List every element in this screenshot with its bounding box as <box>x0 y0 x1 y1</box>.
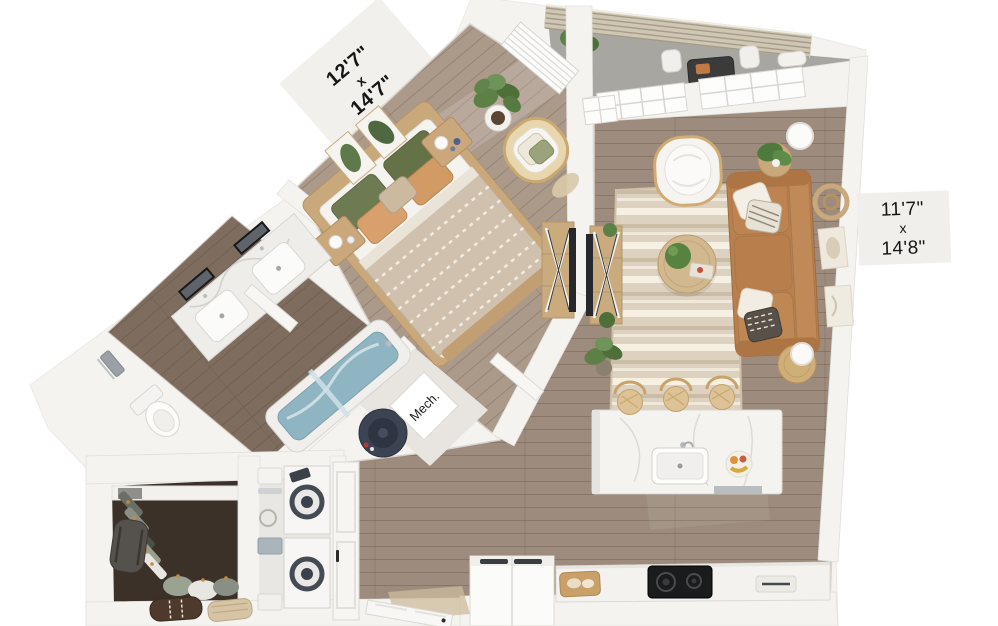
sofa <box>726 169 820 357</box>
woven-bag <box>207 598 253 622</box>
kitchen-island <box>592 410 782 494</box>
coffee-table <box>657 235 717 297</box>
tv-bedroom <box>569 228 576 312</box>
dryer <box>284 466 330 534</box>
balcony-door <box>583 95 618 125</box>
washer <box>284 538 330 608</box>
floor-plan-3d-render: Mech. <box>0 0 998 626</box>
refrigerator <box>470 556 554 626</box>
fruit-bowl <box>726 451 752 477</box>
island-sink <box>652 442 708 484</box>
laundry-door <box>333 462 359 620</box>
door-handle <box>336 550 339 562</box>
dishwasher <box>714 486 762 494</box>
floor-plan-canvas: Mech. <box>0 0 998 626</box>
living-dim-line1: 11'7" <box>880 198 924 220</box>
duffel-bag <box>109 518 150 574</box>
living-dimensions-label: 11'7" x 14'8" <box>857 190 951 265</box>
bottom-counter <box>556 562 830 602</box>
tv-console-bedroom <box>542 222 576 318</box>
cutting-board <box>559 571 600 597</box>
tv-living <box>586 234 593 316</box>
living-dim-line2: x <box>899 220 907 236</box>
floor-lamp <box>787 123 813 149</box>
entry-pouf <box>149 596 202 622</box>
tv-console-living <box>586 223 622 328</box>
cooktop <box>648 566 712 598</box>
living-dim-line3: 14'8" <box>881 237 926 260</box>
counter-tray <box>756 576 796 592</box>
art-frame-2 <box>825 285 854 327</box>
armchair-boucle <box>653 135 722 206</box>
